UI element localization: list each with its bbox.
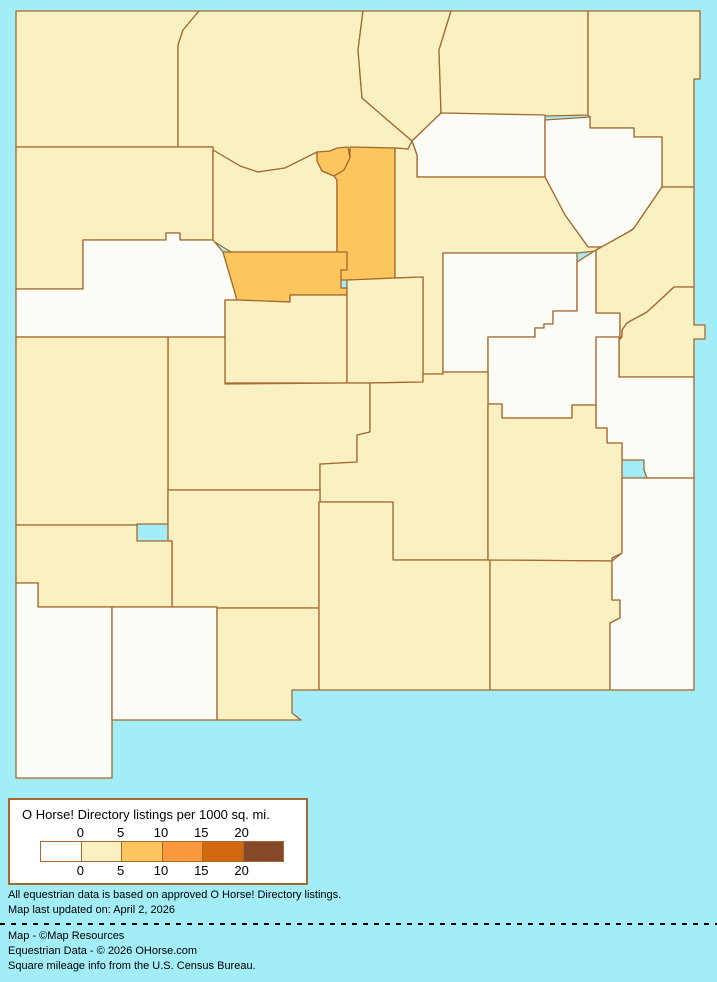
county-chaves[interactable]: Chaves [488, 404, 622, 561]
legend-color-ramp [40, 841, 284, 862]
legend-tick-label: 0 [60, 825, 100, 840]
legend-tick-label: 20 [222, 863, 262, 878]
legend-tick-label: 10 [141, 863, 181, 878]
county-layer: San JuanRio ArribaTaosColfaxUnionMcKinle… [16, 11, 705, 778]
county-mora[interactable]: Mora [412, 113, 545, 177]
county-torrance[interactable]: Torrance [347, 277, 423, 383]
county-colfax[interactable]: Colfax [439, 11, 588, 116]
county-luna[interactable]: Luna [112, 607, 217, 720]
legend-title: O Horse! Directory listings per 1000 sq.… [22, 807, 270, 822]
legend-tick-label: 15 [181, 825, 221, 840]
county-dona-ana[interactable]: Dona Ana [217, 608, 319, 720]
legend-swatch-15-20 [203, 842, 244, 861]
county-eddy[interactable]: Eddy [490, 560, 620, 690]
legend-tick-label: 20 [222, 825, 262, 840]
county-grant[interactable]: Grant [16, 525, 172, 607]
legend-tick-label: 0 [60, 863, 100, 878]
legend-swatch-0 [41, 842, 82, 861]
county-valencia[interactable]: Valencia [225, 295, 347, 383]
county-catron[interactable]: Catron [16, 337, 168, 525]
county-san-juan[interactable]: San Juan [16, 11, 199, 147]
legend-swatch-5-10 [122, 842, 163, 861]
legend-swatch-10-15 [163, 842, 204, 861]
legend: O Horse! Directory listings per 1000 sq.… [8, 798, 308, 885]
legend-tick-label: 5 [101, 825, 141, 840]
legend-ticks-top: 05101520 [10, 825, 306, 839]
footnote-data-source: All equestrian data is based on approved… [8, 889, 341, 901]
legend-tick-label: 5 [101, 863, 141, 878]
legend-tick-label: 10 [141, 825, 181, 840]
legend-ticks-bottom: 05101520 [10, 863, 306, 877]
county-hidalgo[interactable]: Hidalgo [16, 583, 112, 778]
legend-swatch-0-5 [82, 842, 123, 861]
credit-map-resources: Map - ©Map Resources [8, 930, 124, 942]
county-lea[interactable]: Lea [610, 478, 694, 690]
footnote-last-updated: Map last updated on: April 2, 2026 [8, 904, 175, 916]
legend-swatch-20+ [244, 842, 284, 861]
dashed-separator [0, 923, 717, 925]
credit-census-bureau: Square mileage info from the U.S. Census… [8, 960, 256, 972]
new-mexico-county-map: San JuanRio ArribaTaosColfaxUnionMcKinle… [0, 0, 717, 790]
county-sierra[interactable]: Sierra [168, 490, 320, 608]
credit-equestrian-data: Equestrian Data - © 2026 OHorse.com [8, 945, 197, 957]
legend-tick-label: 15 [181, 863, 221, 878]
map-svg: San JuanRio ArribaTaosColfaxUnionMcKinle… [0, 0, 717, 790]
